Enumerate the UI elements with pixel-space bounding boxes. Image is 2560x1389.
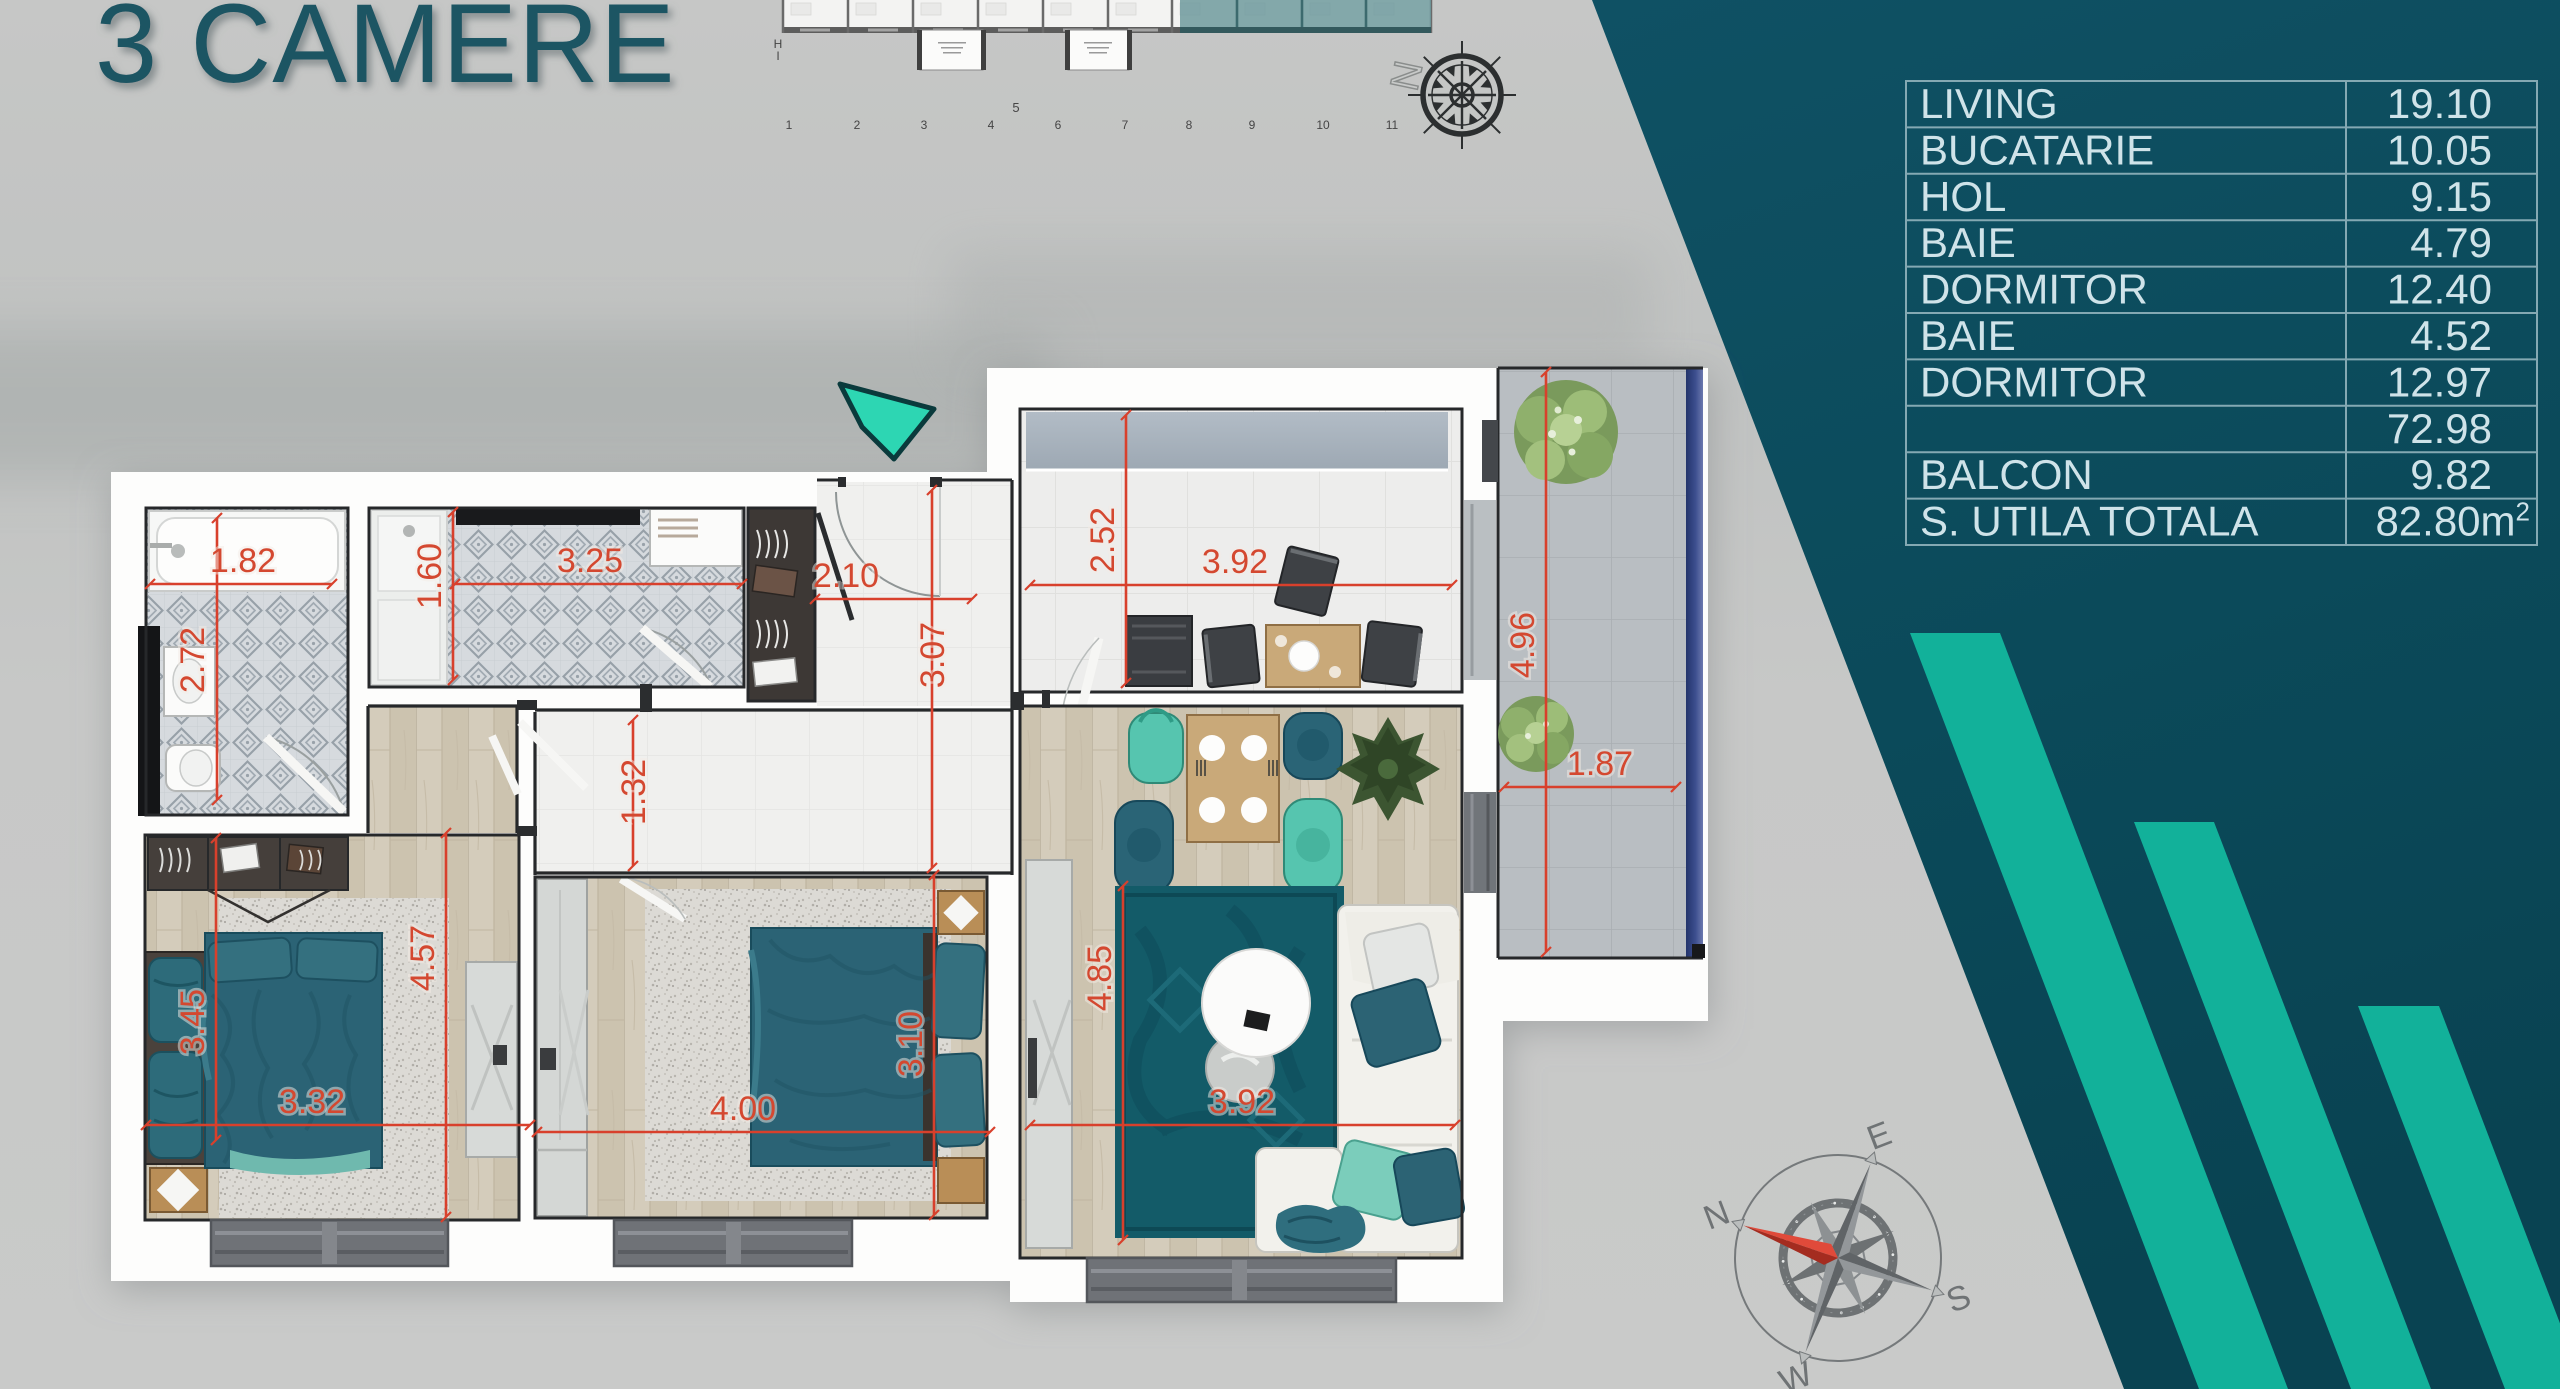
svg-text:1.87: 1.87 [1567, 745, 1633, 783]
svg-text:9.82: 9.82 [2410, 451, 2492, 498]
svg-text:4.85: 4.85 [1081, 945, 1119, 1011]
svg-text:10: 10 [1316, 118, 1330, 132]
svg-text:3.92: 3.92 [1202, 543, 1268, 581]
svg-text:2.52: 2.52 [1084, 507, 1122, 573]
svg-text:8: 8 [1186, 118, 1193, 132]
svg-text:9.15: 9.15 [2410, 173, 2492, 220]
svg-text:BAIE: BAIE [1920, 219, 2016, 266]
svg-text:DORMITOR: DORMITOR [1920, 266, 2148, 313]
svg-text:4.00: 4.00 [710, 1090, 776, 1128]
svg-text:3 CAMERE: 3 CAMERE [95, 0, 676, 106]
svg-text:1.82: 1.82 [210, 542, 276, 580]
svg-text:4.57: 4.57 [404, 925, 442, 991]
svg-text:3.32: 3.32 [279, 1083, 345, 1121]
svg-text:3.07: 3.07 [914, 622, 952, 688]
svg-text:S. UTILA TOTALA: S. UTILA TOTALA [1920, 498, 2258, 545]
svg-text:3.92: 3.92 [1209, 1083, 1275, 1121]
svg-text:72.98: 72.98 [2387, 405, 2492, 452]
svg-text:LIVING: LIVING [1920, 80, 2058, 127]
svg-text:82.80m2: 82.80m2 [2375, 497, 2530, 545]
svg-text:2: 2 [854, 118, 861, 132]
svg-text:4.52: 4.52 [2410, 312, 2492, 359]
svg-text:19.10: 19.10 [2387, 80, 2492, 127]
svg-text:BAIE: BAIE [1920, 312, 2016, 359]
svg-text:2.72: 2.72 [174, 627, 212, 693]
svg-text:1.32: 1.32 [615, 759, 653, 825]
svg-text:12.97: 12.97 [2387, 358, 2492, 405]
svg-text:BUCATARIE: BUCATARIE [1920, 126, 2154, 173]
svg-text:6: 6 [1055, 118, 1062, 132]
svg-text:I: I [776, 49, 779, 63]
svg-text:3.25: 3.25 [557, 542, 623, 580]
svg-text:10.05: 10.05 [2387, 126, 2492, 173]
svg-text:3.45: 3.45 [174, 989, 212, 1055]
svg-text:12.40: 12.40 [2387, 266, 2492, 313]
svg-text:5: 5 [1012, 100, 1019, 115]
svg-text:9: 9 [1249, 118, 1256, 132]
svg-text:11: 11 [1386, 118, 1399, 132]
svg-text:BALCON: BALCON [1920, 451, 2093, 498]
svg-text:3: 3 [921, 118, 928, 132]
svg-text:3.10: 3.10 [892, 1011, 930, 1077]
svg-text:2.10: 2.10 [813, 557, 879, 595]
svg-text:1.60: 1.60 [411, 543, 449, 609]
svg-text:7: 7 [1122, 118, 1129, 132]
svg-text:4: 4 [988, 118, 995, 132]
svg-text:1: 1 [786, 118, 793, 132]
svg-text:DORMITOR: DORMITOR [1920, 358, 2148, 405]
svg-text:4.79: 4.79 [2410, 219, 2492, 266]
svg-text:4.96: 4.96 [1504, 612, 1542, 678]
svg-text:HOL: HOL [1920, 173, 2006, 220]
